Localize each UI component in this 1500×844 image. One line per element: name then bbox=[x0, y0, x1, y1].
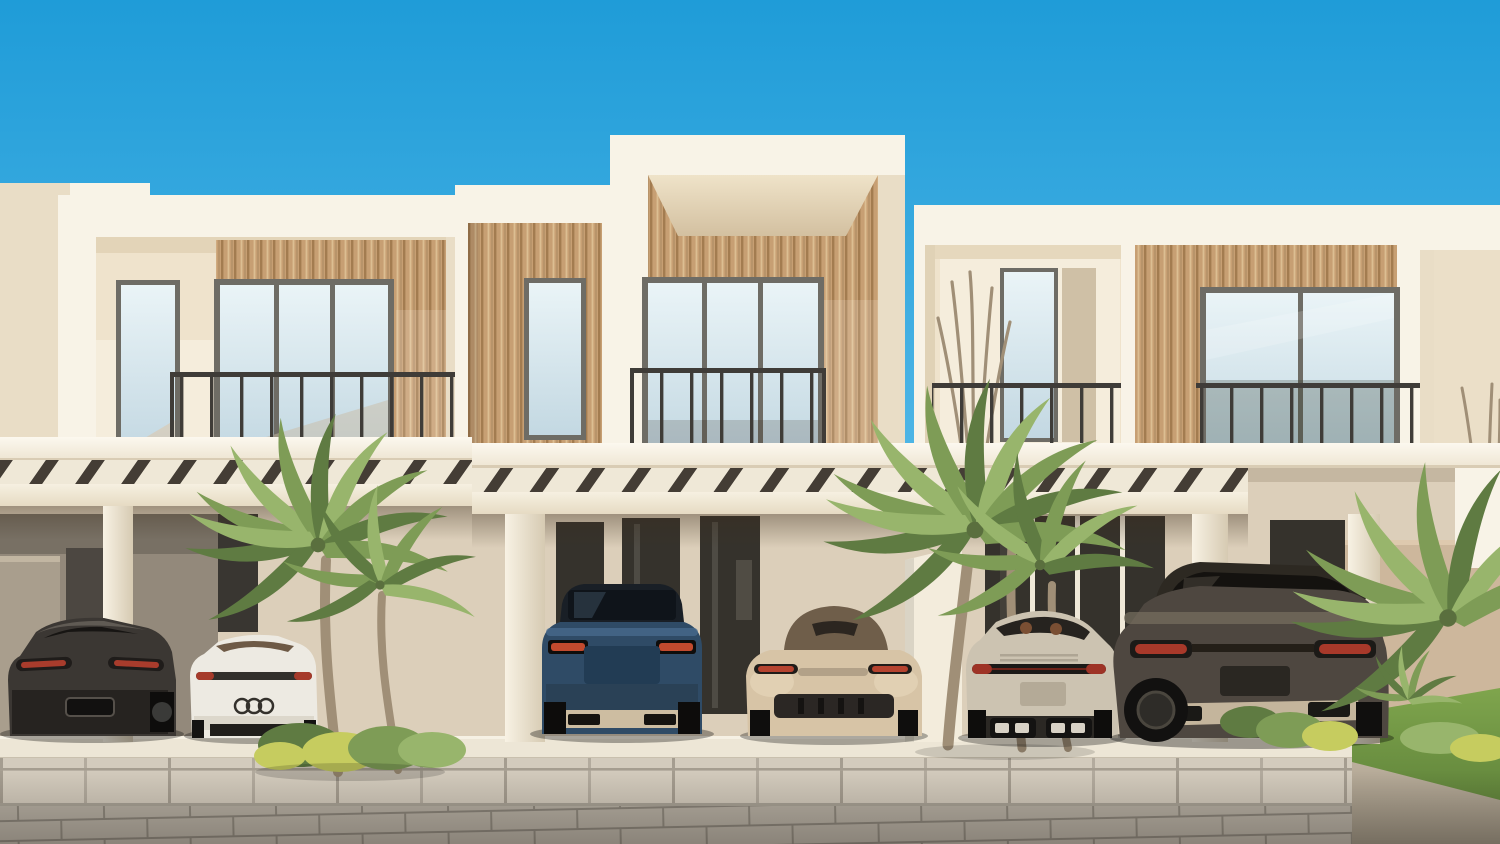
connector-narrow-window bbox=[524, 278, 586, 440]
shoulder-highlight bbox=[546, 628, 698, 636]
engine-grille bbox=[1000, 654, 1078, 657]
wheel bbox=[750, 710, 770, 736]
palm-ground-shadow bbox=[915, 744, 1095, 760]
wheel bbox=[544, 702, 566, 734]
wheel bbox=[678, 702, 700, 734]
diffuser-fin bbox=[838, 698, 844, 714]
balcony-ceiling bbox=[925, 245, 1121, 259]
tail-light-band bbox=[196, 672, 312, 680]
diffuser-fin bbox=[818, 698, 824, 714]
seat-headrest bbox=[1050, 623, 1062, 635]
seat-headrest bbox=[1020, 622, 1032, 634]
door-reflection bbox=[736, 560, 752, 620]
palm-ground-shadow bbox=[255, 763, 445, 781]
townhouse-render bbox=[0, 0, 1500, 844]
post bbox=[505, 514, 545, 742]
left-townhouse bbox=[58, 195, 472, 457]
wheel-rim bbox=[152, 702, 172, 722]
wheel-rim bbox=[1138, 692, 1174, 728]
lower-fascia bbox=[774, 694, 894, 718]
diffuser-fin bbox=[858, 698, 864, 714]
rear-bumper bbox=[546, 684, 698, 710]
center-ceiling bbox=[648, 175, 878, 236]
trunk-trim bbox=[798, 668, 868, 676]
wheel bbox=[898, 710, 918, 736]
light-bar bbox=[972, 664, 1106, 674]
exhaust bbox=[644, 714, 676, 725]
wheel bbox=[968, 710, 986, 738]
wheel bbox=[1094, 710, 1112, 738]
architectural-render-scene bbox=[0, 0, 1500, 844]
exhaust bbox=[568, 714, 600, 725]
plate-recess bbox=[1220, 666, 1290, 696]
center-townhouse bbox=[610, 135, 905, 457]
center-wood-light-strip bbox=[824, 300, 878, 457]
connector-bay bbox=[455, 185, 615, 457]
tailgate-recess bbox=[584, 646, 660, 684]
engine-grille bbox=[1000, 659, 1078, 662]
road-vignette bbox=[0, 770, 1500, 844]
light-bar-strip bbox=[1192, 644, 1314, 652]
right-divider bbox=[1121, 245, 1135, 460]
exhaust bbox=[66, 698, 114, 716]
wheel bbox=[1356, 702, 1382, 736]
pergola-fascia bbox=[0, 484, 472, 506]
diffuser-fin bbox=[798, 698, 804, 714]
connector-shade bbox=[468, 223, 478, 457]
wheel bbox=[192, 720, 204, 738]
plate-recess bbox=[1020, 682, 1066, 706]
